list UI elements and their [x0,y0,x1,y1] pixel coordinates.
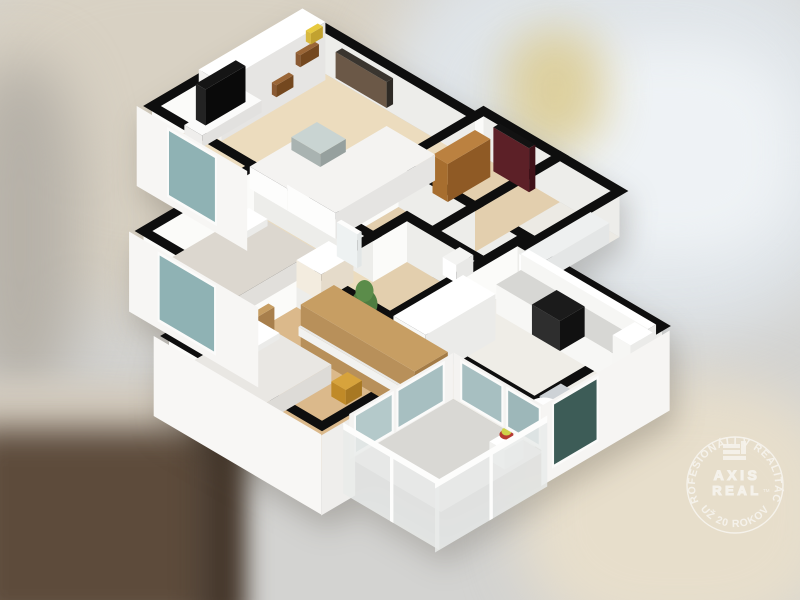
brand-name-real: REAL [712,483,761,498]
agency-watermark-badge: PROFESIONÁLI V REALITÁCH UŽ 20 ROKOV AXI… [660,410,800,560]
trademark-symbol: TM [763,488,770,493]
real-estate-3d-floorplan-image: PROFESIONÁLI V REALITÁCH UŽ 20 ROKOV AXI… [0,0,800,600]
brand-name-axis: AXIS [714,467,761,483]
hall-plant-leaves-top [356,280,374,302]
